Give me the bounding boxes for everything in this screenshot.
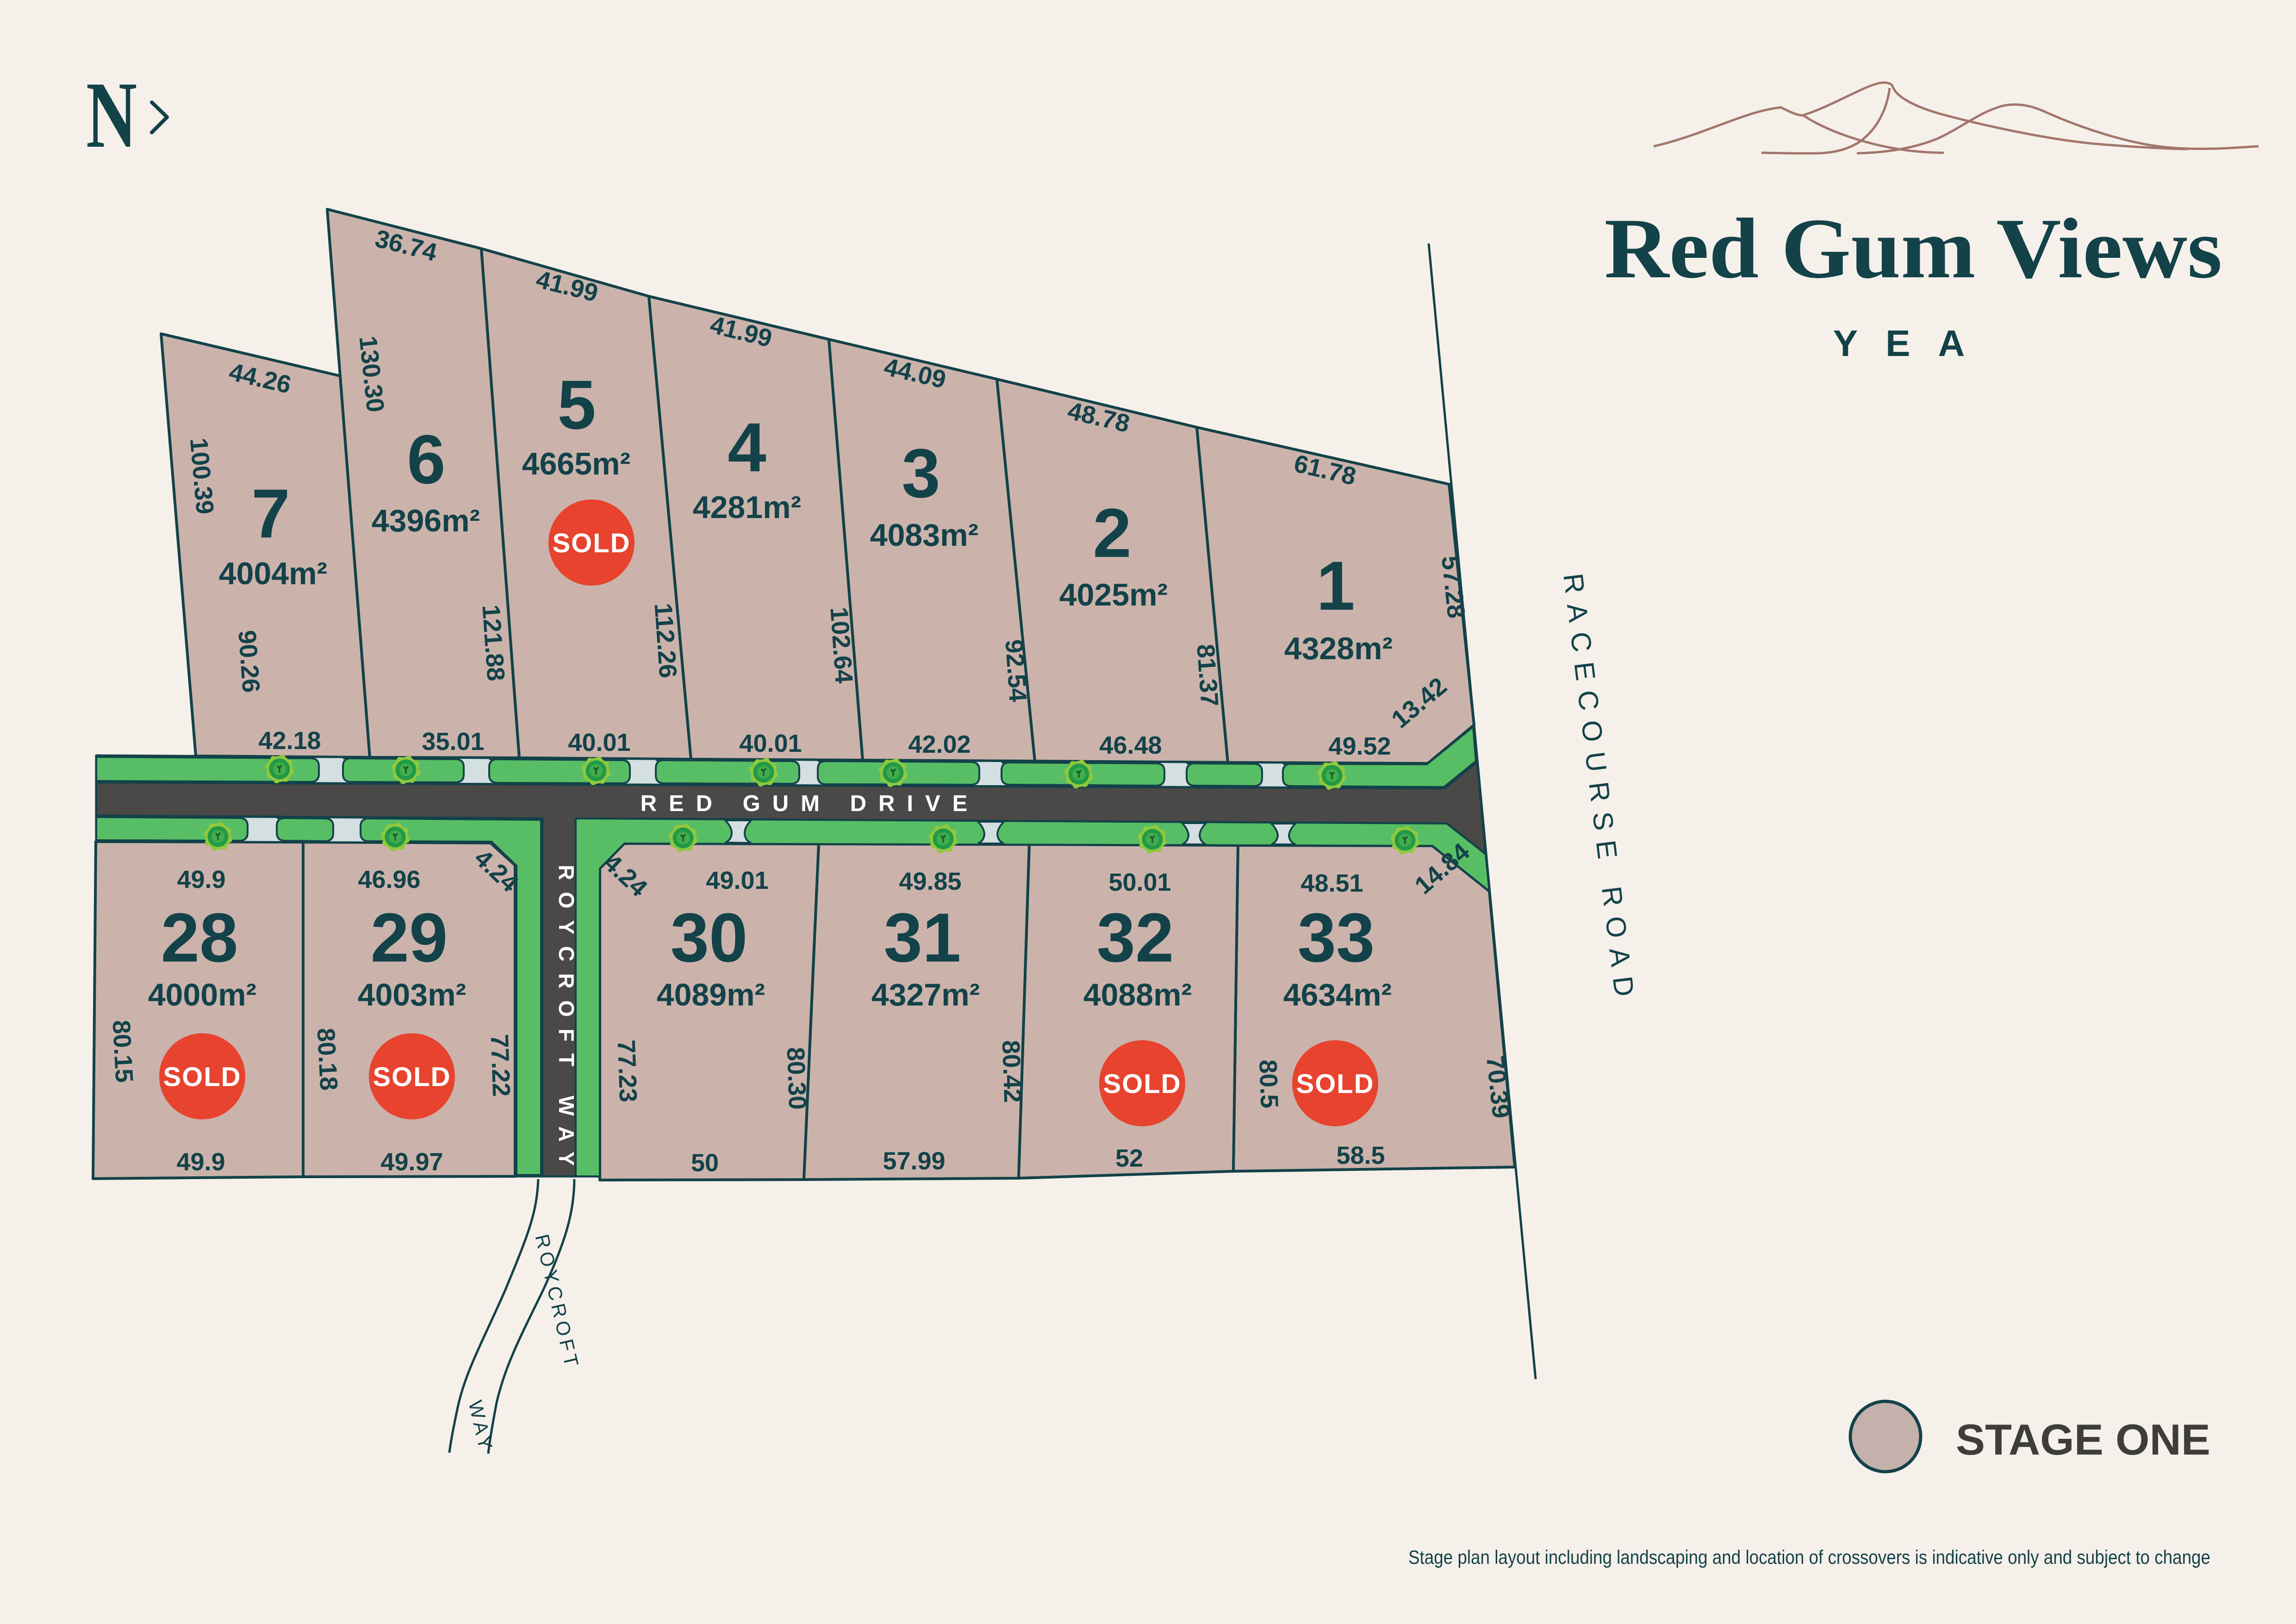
svg-text:31: 31 <box>884 899 961 976</box>
svg-text:80.42: 80.42 <box>997 1040 1027 1103</box>
svg-text:49.52: 49.52 <box>1328 732 1391 760</box>
svg-text:RED GUM DRIVE: RED GUM DRIVE <box>641 791 980 816</box>
svg-text:4: 4 <box>728 408 766 486</box>
svg-text:57.99: 57.99 <box>883 1147 945 1175</box>
svg-text:30: 30 <box>671 899 748 976</box>
svg-text:4327m²: 4327m² <box>871 977 980 1012</box>
svg-text:40.01: 40.01 <box>739 730 802 757</box>
svg-text:6: 6 <box>407 420 445 498</box>
svg-text:4083m²: 4083m² <box>870 518 978 553</box>
svg-text:50: 50 <box>691 1149 719 1177</box>
svg-text:40.01: 40.01 <box>568 729 630 756</box>
svg-text:46.48: 46.48 <box>1099 731 1162 759</box>
svg-text:4634m²: 4634m² <box>1283 977 1392 1012</box>
svg-text:92.54: 92.54 <box>1000 638 1032 703</box>
svg-text:50.01: 50.01 <box>1108 868 1171 896</box>
svg-text:SOLD: SOLD <box>373 1062 451 1092</box>
svg-text:49.01: 49.01 <box>706 867 768 894</box>
svg-text:SOLD: SOLD <box>1103 1069 1181 1099</box>
svg-text:4004m²: 4004m² <box>219 556 327 591</box>
svg-text:52: 52 <box>1115 1144 1143 1172</box>
svg-text:90.26: 90.26 <box>233 629 265 693</box>
svg-text:SOLD: SOLD <box>552 528 630 558</box>
svg-text:STAGE ONE: STAGE ONE <box>1956 1415 2210 1464</box>
svg-text:4088m²: 4088m² <box>1083 977 1192 1012</box>
svg-text:35.01: 35.01 <box>422 728 484 756</box>
svg-text:SOLD: SOLD <box>163 1062 241 1092</box>
svg-text:4665m²: 4665m² <box>522 446 630 481</box>
svg-text:80.15: 80.15 <box>107 1019 138 1083</box>
svg-text:Red Gum Views: Red Gum Views <box>1605 201 2222 296</box>
svg-text:4025m²: 4025m² <box>1059 577 1168 612</box>
svg-text:121.88: 121.88 <box>477 604 510 682</box>
svg-text:32: 32 <box>1097 899 1174 976</box>
svg-text:49.85: 49.85 <box>899 868 961 895</box>
svg-text:4281m²: 4281m² <box>693 490 801 525</box>
svg-text:49.97: 49.97 <box>380 1148 443 1176</box>
svg-text:80.5: 80.5 <box>1254 1059 1283 1109</box>
svg-text:33: 33 <box>1298 899 1375 976</box>
svg-text:4396m²: 4396m² <box>372 503 480 538</box>
svg-text:80.18: 80.18 <box>311 1027 342 1091</box>
svg-text:4003m²: 4003m² <box>358 977 466 1012</box>
svg-text:YEA: YEA <box>1833 323 1993 364</box>
svg-text:102.64: 102.64 <box>825 606 858 684</box>
svg-text:42.02: 42.02 <box>908 731 971 758</box>
svg-text:80.30: 80.30 <box>782 1047 812 1110</box>
svg-text:Stage plan layout including la: Stage plan layout including landscaping … <box>1408 1546 2210 1568</box>
svg-text:4089m²: 4089m² <box>657 977 765 1012</box>
svg-text:49.9: 49.9 <box>176 1148 225 1176</box>
svg-text:58.5: 58.5 <box>1336 1142 1385 1169</box>
svg-text:4000m²: 4000m² <box>148 977 256 1012</box>
svg-text:28: 28 <box>161 899 238 976</box>
svg-text:46.96: 46.96 <box>358 866 420 893</box>
svg-text:N: N <box>86 62 137 168</box>
svg-text:112.26: 112.26 <box>649 602 682 679</box>
svg-text:77.22: 77.22 <box>485 1034 516 1097</box>
svg-text:29: 29 <box>371 899 448 976</box>
svg-text:7: 7 <box>251 475 290 552</box>
svg-text:1: 1 <box>1316 547 1355 625</box>
svg-text:49.9: 49.9 <box>177 866 225 893</box>
svg-text:81.37: 81.37 <box>1191 643 1223 707</box>
svg-text:48.51: 48.51 <box>1300 869 1363 897</box>
svg-text:SOLD: SOLD <box>1296 1069 1374 1099</box>
svg-text:4328m²: 4328m² <box>1284 631 1393 666</box>
svg-text:5: 5 <box>557 366 596 443</box>
svg-text:42.18: 42.18 <box>258 727 321 755</box>
svg-text:77.23: 77.23 <box>612 1039 642 1103</box>
svg-text:3: 3 <box>902 434 940 512</box>
svg-text:2: 2 <box>1093 494 1131 572</box>
